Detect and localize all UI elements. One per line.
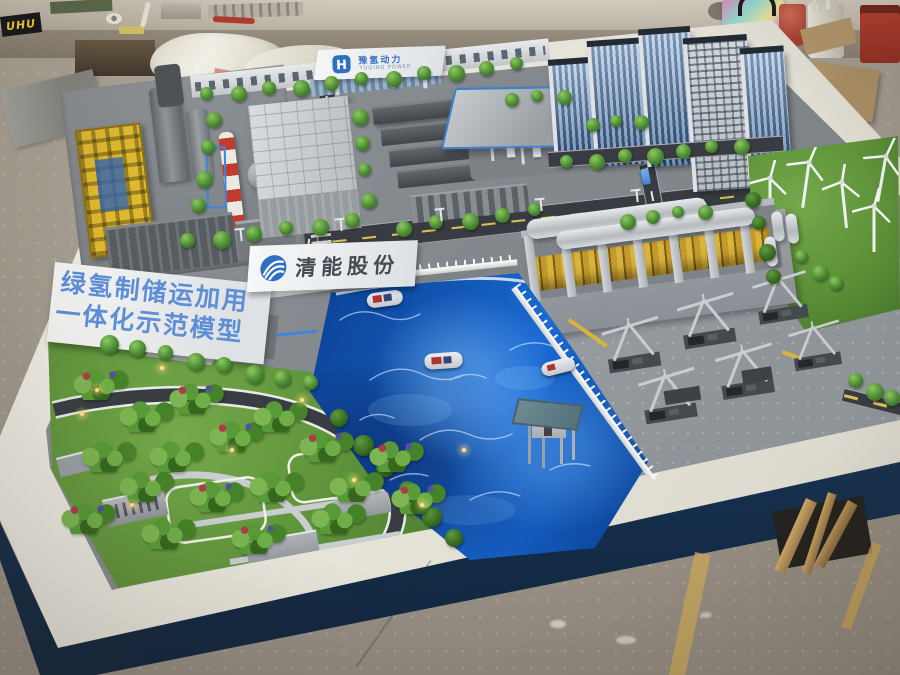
shrub-cluster xyxy=(248,468,306,502)
shrub-cluster xyxy=(72,366,130,400)
shrub-cluster xyxy=(188,478,246,512)
tree xyxy=(795,250,808,263)
sponge xyxy=(119,26,144,34)
tree xyxy=(396,221,412,237)
tree xyxy=(200,87,213,100)
gantry-crane xyxy=(600,313,665,373)
park-lamp xyxy=(130,503,134,507)
glue-box-brand-label: UHU xyxy=(5,16,36,33)
paint-splotch xyxy=(616,636,636,644)
tree xyxy=(495,208,510,223)
tree xyxy=(303,375,318,390)
tree xyxy=(676,144,691,159)
tree xyxy=(231,86,247,102)
shrub-cluster xyxy=(80,438,138,472)
park-lamp xyxy=(230,448,234,452)
shrub-cluster xyxy=(368,438,426,472)
shrub-cluster xyxy=(148,438,206,472)
tree xyxy=(386,71,402,87)
shrub-cluster xyxy=(310,500,368,534)
tree xyxy=(324,76,339,91)
metal-box xyxy=(161,3,201,19)
tree xyxy=(766,269,781,284)
tree xyxy=(158,345,173,360)
tree xyxy=(705,140,718,153)
park-lamp xyxy=(95,388,99,392)
warehouse-roof xyxy=(248,96,357,201)
tree xyxy=(586,118,600,132)
tree xyxy=(206,112,222,128)
tree xyxy=(479,61,494,76)
tree xyxy=(560,155,573,168)
boat-cargo xyxy=(372,295,382,303)
tree xyxy=(196,171,213,188)
platform-leg xyxy=(528,420,531,464)
rolled-papers xyxy=(812,0,816,10)
tree xyxy=(589,154,605,170)
gantry-crane xyxy=(675,289,740,349)
tree xyxy=(634,115,649,130)
tape-roll xyxy=(106,13,122,24)
paint-splotch xyxy=(550,620,566,628)
gantry-crane xyxy=(751,268,813,325)
tree xyxy=(358,163,371,176)
dark-stack xyxy=(154,63,185,108)
gate-logo-icon: H xyxy=(331,54,352,75)
tree xyxy=(672,206,684,218)
tree xyxy=(531,90,543,102)
park-lamp xyxy=(160,366,164,370)
boat xyxy=(424,351,463,370)
boat-cargo xyxy=(383,293,392,301)
shrub-cluster xyxy=(60,500,118,534)
boat-cargo xyxy=(547,364,556,372)
tree xyxy=(312,219,329,236)
boat-cargo xyxy=(431,357,441,365)
tree xyxy=(557,90,572,105)
gantry-crane xyxy=(787,317,846,371)
paint-splotch xyxy=(700,612,712,618)
shrub-cluster xyxy=(252,398,310,432)
tree xyxy=(812,265,828,281)
tree xyxy=(510,57,523,70)
shrub-cluster xyxy=(230,520,288,554)
shrub-cluster xyxy=(118,468,176,502)
tree xyxy=(129,340,146,357)
park-lamp xyxy=(420,503,424,507)
tree xyxy=(884,390,900,406)
company-sign-name: 清能股份 xyxy=(294,249,400,283)
shrub-cluster xyxy=(140,515,198,549)
company-logo-swoosh-icon xyxy=(257,253,289,284)
workshop-photo: UHU xyxy=(0,0,900,675)
tree xyxy=(610,115,622,127)
park-lamp xyxy=(462,448,466,452)
platform-deck xyxy=(512,398,584,431)
tree xyxy=(279,221,293,235)
company-sign: 清能股份 xyxy=(247,240,418,292)
tree xyxy=(355,72,368,85)
shrub-cluster xyxy=(168,380,226,414)
park-lamp xyxy=(80,412,84,416)
svg-text:H: H xyxy=(336,58,347,73)
tree xyxy=(201,140,215,154)
tree xyxy=(505,93,519,107)
tree xyxy=(187,353,205,371)
offshore-platform xyxy=(518,376,582,470)
shrub-cluster xyxy=(390,480,448,514)
boat-cargo xyxy=(443,356,451,364)
tree xyxy=(698,205,713,220)
wind-turbine xyxy=(860,138,900,208)
tree xyxy=(274,370,291,387)
park-lamp xyxy=(352,478,356,482)
tree xyxy=(734,139,750,155)
tree xyxy=(745,192,761,208)
red-machine xyxy=(860,5,900,63)
tree xyxy=(361,193,377,209)
shrub-cluster xyxy=(328,468,386,502)
shrub-cluster xyxy=(298,428,356,462)
park-lamp xyxy=(300,398,304,402)
tree xyxy=(355,136,370,151)
tree xyxy=(646,210,660,224)
tree xyxy=(246,226,262,242)
